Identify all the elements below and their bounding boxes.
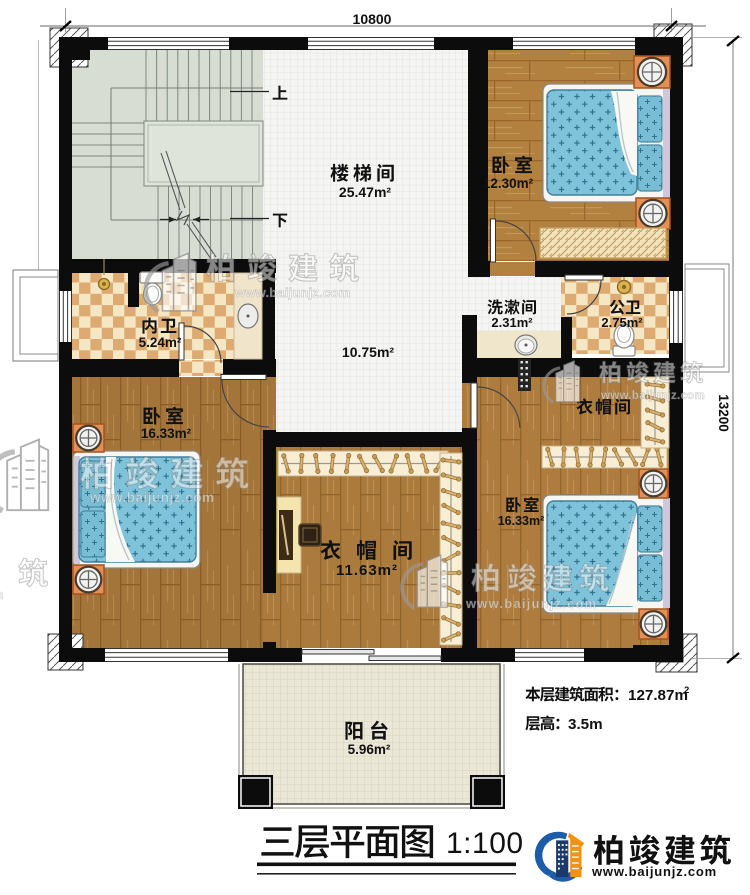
svg-text:www.baijunjz.com: www.baijunjz.com — [600, 390, 705, 402]
svg-text:5.24m²: 5.24m² — [139, 335, 182, 350]
svg-text:12.30m²: 12.30m² — [483, 176, 534, 191]
svg-text:2.31m²: 2.31m² — [491, 315, 533, 330]
svg-text:16.33m²: 16.33m² — [141, 426, 192, 441]
svg-text:5.96m²: 5.96m² — [348, 742, 391, 757]
svg-text:www.baijunjz.com: www.baijunjz.com — [465, 596, 597, 611]
svg-text:11.63m²: 11.63m² — [336, 562, 398, 579]
svg-text:jz.com: jz.com — [0, 588, 4, 602]
svg-text:13200: 13200 — [716, 394, 731, 432]
svg-text:2: 2 — [684, 685, 689, 696]
svg-text:25.47m²: 25.47m² — [339, 184, 391, 200]
svg-text:16.33m²: 16.33m² — [498, 514, 545, 528]
svg-text:10800: 10800 — [353, 11, 392, 27]
svg-text:2.75m²: 2.75m² — [601, 315, 643, 330]
svg-text:127.87m: 127.87m — [628, 687, 688, 704]
svg-text:10.75m²: 10.75m² — [342, 344, 394, 360]
svg-text:www.baijunjz.com: www.baijunjz.com — [89, 490, 215, 505]
svg-text:1:100: 1:100 — [446, 827, 524, 860]
svg-text:3.5m: 3.5m — [568, 716, 603, 733]
svg-text:www.baijunjz.com: www.baijunjz.com — [591, 864, 717, 879]
svg-text:www.baijunjz.com: www.baijunjz.com — [234, 285, 350, 300]
